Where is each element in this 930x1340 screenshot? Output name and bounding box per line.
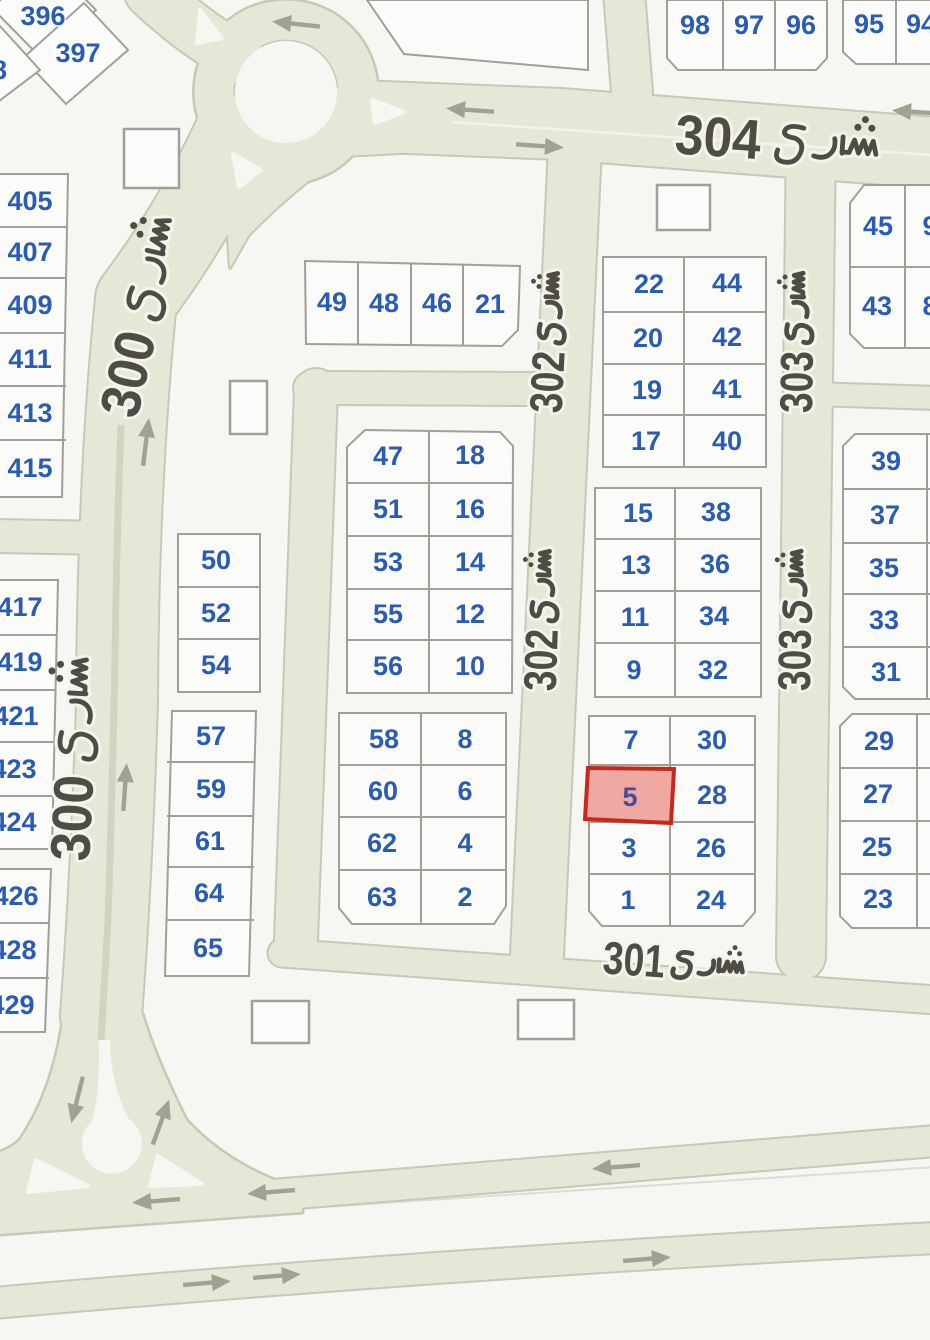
svg-text:31: 31 [871,657,901,687]
svg-text:38: 38 [0,55,7,85]
svg-text:2: 2 [457,882,472,912]
svg-text:15: 15 [623,498,653,528]
svg-text:43: 43 [862,291,892,321]
svg-text:6: 6 [457,776,472,806]
svg-text:428: 428 [0,935,37,965]
svg-text:26: 26 [696,833,726,863]
svg-text:55: 55 [373,599,403,629]
svg-text:409: 409 [7,290,52,320]
svg-text:8: 8 [457,724,472,754]
svg-text:23: 23 [863,884,893,914]
svg-text:303: 303 [768,629,821,692]
svg-text:98: 98 [680,10,710,40]
svg-text:33: 33 [869,605,899,635]
svg-text:9: 9 [922,211,930,241]
svg-text:30: 30 [697,725,727,755]
svg-text:57: 57 [196,721,226,751]
svg-text:25: 25 [862,832,892,862]
svg-text:41: 41 [712,374,742,404]
svg-text:17: 17 [631,426,661,456]
svg-text:95: 95 [854,9,884,39]
svg-text:49: 49 [317,287,347,317]
svg-text:52: 52 [201,598,231,628]
svg-text:396: 396 [20,1,65,31]
svg-text:303: 303 [770,351,823,414]
svg-text:10: 10 [455,651,485,681]
svg-text:32: 32 [698,655,728,685]
svg-text:8: 8 [922,291,930,321]
svg-text:34: 34 [699,601,729,631]
svg-text:405: 405 [7,186,52,216]
svg-text:35: 35 [869,553,899,583]
svg-text:14: 14 [455,547,485,577]
svg-text:7: 7 [623,725,638,755]
svg-text:96: 96 [786,10,816,40]
svg-text:423: 423 [0,754,37,784]
svg-text:304: 304 [673,102,763,171]
svg-text:45: 45 [863,211,893,241]
svg-text:62: 62 [367,828,397,858]
svg-text:415: 415 [7,453,52,483]
svg-text:21: 21 [475,289,505,319]
svg-text:47: 47 [373,441,403,471]
svg-text:44: 44 [712,268,742,298]
svg-text:53: 53 [373,547,403,577]
svg-text:419: 419 [0,647,43,677]
svg-text:37: 37 [870,500,900,530]
svg-text:16: 16 [455,494,485,524]
svg-text:12: 12 [455,599,485,629]
svg-text:300: 300 [38,773,105,862]
svg-text:61: 61 [195,826,225,856]
svg-text:51: 51 [373,494,403,524]
svg-text:429: 429 [0,990,35,1020]
svg-text:302: 302 [514,628,568,692]
svg-text:56: 56 [373,651,403,681]
svg-text:407: 407 [7,237,52,267]
svg-text:11: 11 [621,602,650,632]
svg-text:39: 39 [871,446,901,476]
svg-text:302: 302 [520,350,575,415]
svg-text:97: 97 [734,10,764,40]
svg-text:36: 36 [700,549,730,579]
svg-text:60: 60 [368,776,398,806]
svg-text:417: 417 [0,592,43,622]
svg-text:48: 48 [369,288,399,318]
svg-text:397: 397 [55,38,100,68]
svg-text:28: 28 [697,780,727,810]
svg-text:46: 46 [422,288,452,318]
svg-text:4: 4 [457,828,472,858]
svg-text:38: 38 [701,497,731,527]
svg-text:1: 1 [620,885,635,915]
svg-text:13: 13 [621,550,651,580]
svg-text:18: 18 [455,440,485,470]
svg-text:63: 63 [367,882,397,912]
svg-text:29: 29 [864,726,894,756]
svg-text:58: 58 [369,724,399,754]
svg-text:413: 413 [7,398,52,428]
svg-text:424: 424 [0,807,37,837]
svg-text:24: 24 [696,885,726,915]
svg-text:426: 426 [0,881,39,911]
svg-text:42: 42 [712,322,742,352]
svg-text:22: 22 [634,269,664,299]
svg-text:65: 65 [193,933,223,963]
svg-text:411: 411 [8,344,52,374]
svg-text:54: 54 [201,650,231,680]
svg-text:9: 9 [626,655,641,685]
svg-text:94: 94 [906,9,930,39]
svg-text:20: 20 [633,323,663,353]
svg-text:19: 19 [632,375,662,405]
svg-text:64: 64 [194,878,224,908]
svg-text:5: 5 [622,782,637,812]
svg-text:421: 421 [0,701,39,731]
svg-text:59: 59 [196,774,226,804]
svg-text:27: 27 [863,779,893,809]
svg-text:3: 3 [621,833,636,863]
svg-text:40: 40 [712,426,742,456]
svg-text:50: 50 [201,545,231,575]
svg-text:301: 301 [601,931,666,987]
